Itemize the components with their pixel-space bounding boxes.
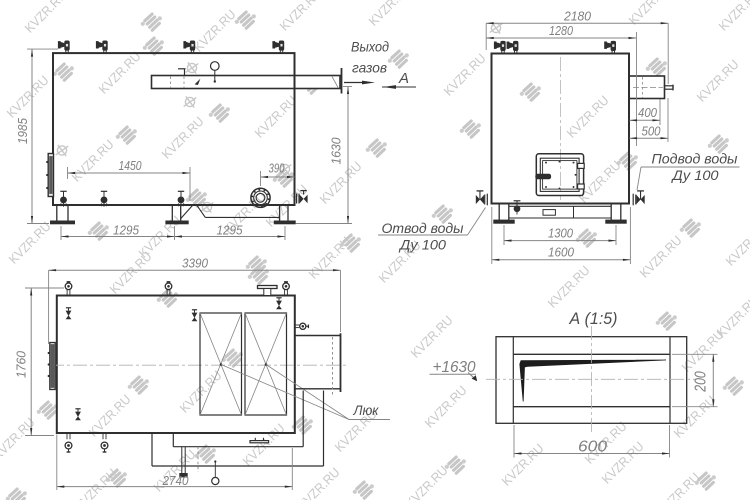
svg-text:390: 390 [269,162,285,176]
svg-text:Отвод воды: Отвод воды [382,220,465,236]
svg-text:1450: 1450 [119,159,142,173]
svg-text:1295: 1295 [217,224,243,238]
svg-text:А: А [398,70,409,87]
svg-text:газов: газов [352,60,387,76]
svg-text:1280: 1280 [549,24,573,38]
svg-text:1985: 1985 [16,118,30,144]
svg-text:2180: 2180 [563,10,591,24]
svg-text:Ду 100: Ду 100 [398,237,446,253]
svg-text:Выход: Выход [351,39,389,55]
svg-text:А (1:5): А (1:5) [569,309,618,328]
svg-text:600: 600 [578,439,607,456]
svg-text:Ду 100: Ду 100 [670,167,718,183]
svg-text:1295: 1295 [113,224,139,238]
svg-text:Подвод воды: Подвод воды [652,151,739,167]
svg-text:3390: 3390 [182,257,208,271]
svg-text:Люк: Люк [353,402,380,418]
svg-text:400: 400 [638,106,657,120]
svg-text:200: 200 [693,371,710,392]
svg-text:1630: 1630 [330,137,344,164]
svg-text:1300: 1300 [548,226,573,240]
svg-text:1600: 1600 [548,246,574,260]
svg-text:1760: 1760 [15,351,29,378]
svg-text:500: 500 [642,125,661,139]
svg-text:2740: 2740 [162,474,189,488]
